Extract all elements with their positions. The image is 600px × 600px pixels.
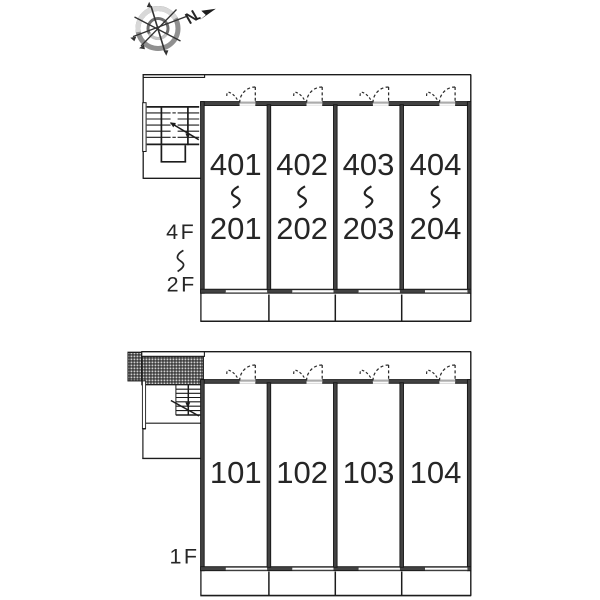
svg-text:404: 404 <box>410 147 462 182</box>
svg-text:403: 403 <box>343 147 395 182</box>
svg-text:101: 101 <box>210 455 262 490</box>
svg-text:204: 204 <box>410 211 462 246</box>
svg-text:102: 102 <box>276 455 328 490</box>
svg-text:103: 103 <box>343 455 395 490</box>
svg-text:202: 202 <box>276 211 328 246</box>
svg-text:402: 402 <box>276 147 328 182</box>
svg-text:4F: 4F <box>166 220 196 244</box>
svg-text:401: 401 <box>210 147 262 182</box>
svg-text:203: 203 <box>343 211 395 246</box>
svg-text:1F: 1F <box>169 544 199 568</box>
svg-text:2F: 2F <box>167 272 197 296</box>
svg-text:104: 104 <box>410 455 462 490</box>
svg-text:201: 201 <box>210 211 262 246</box>
